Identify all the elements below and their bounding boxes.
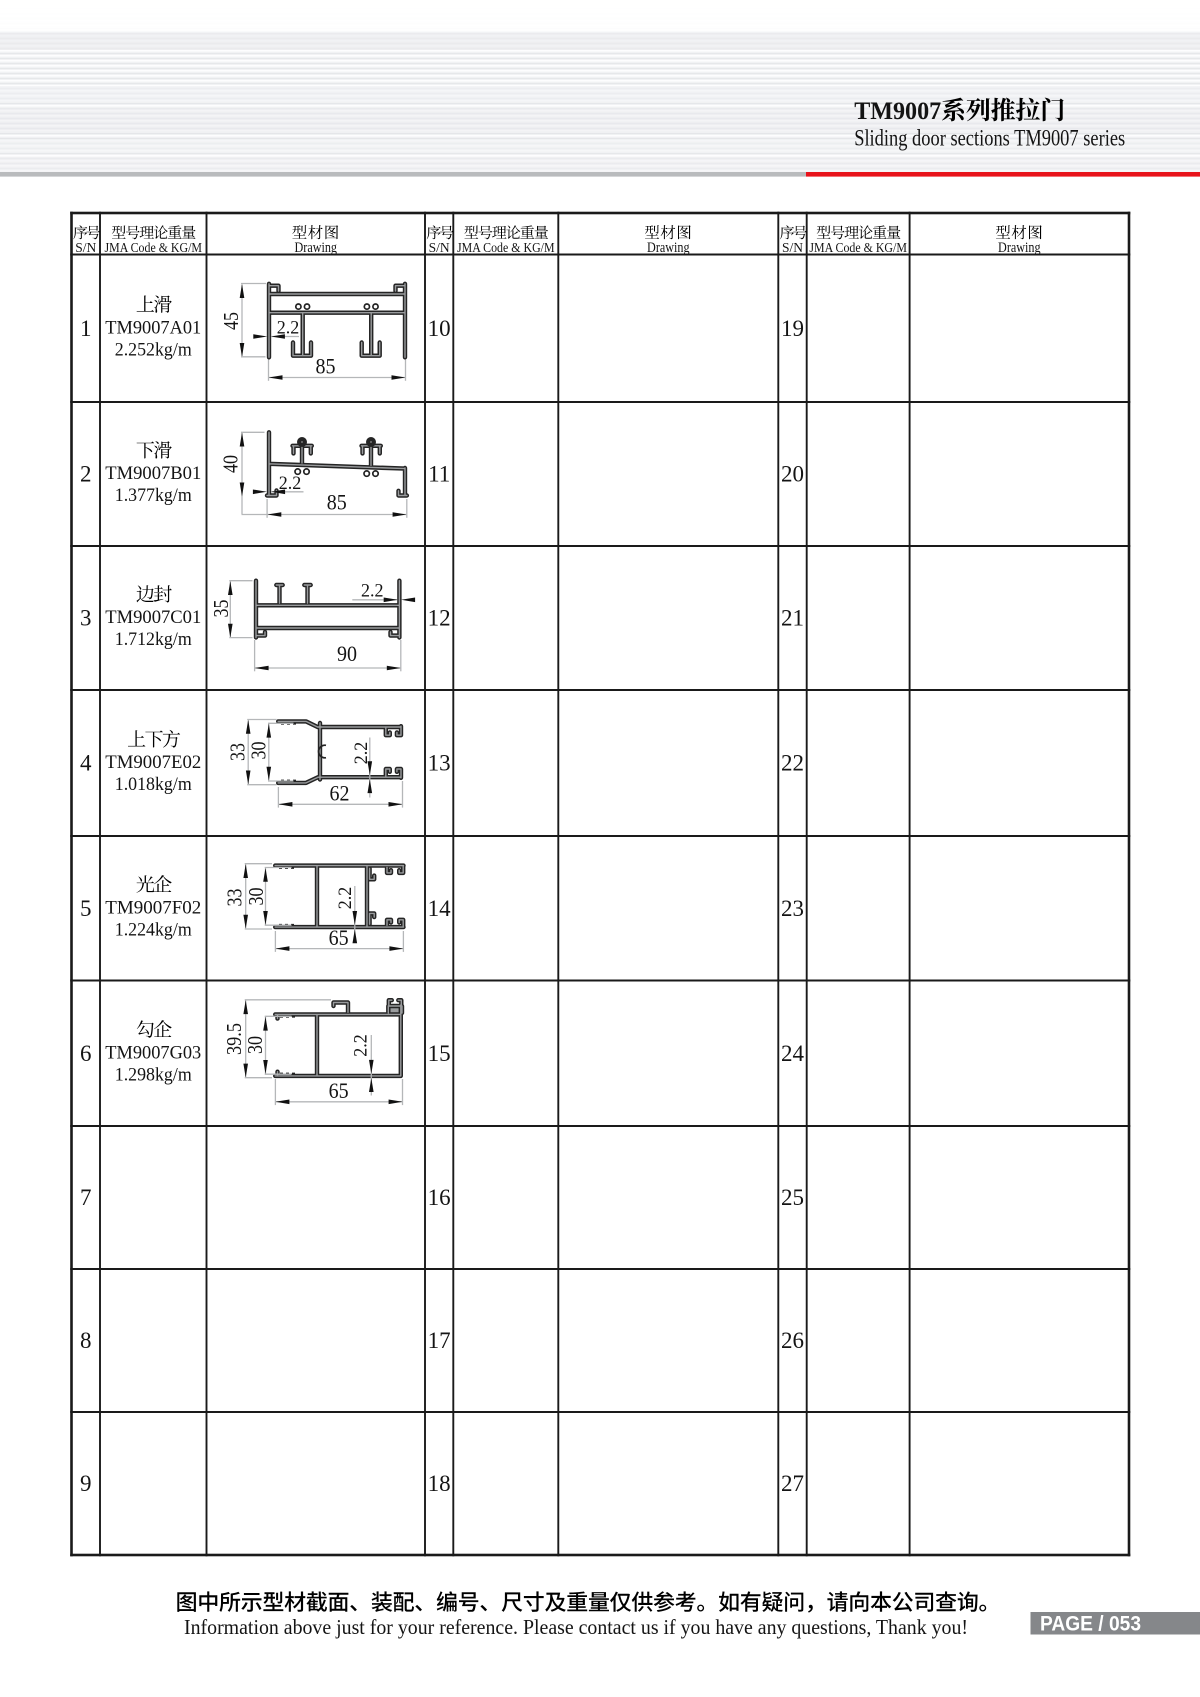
svg-text:16: 16	[428, 1185, 451, 1210]
svg-text:9: 9	[80, 1471, 92, 1496]
svg-text:33: 33	[223, 889, 247, 907]
svg-text:22: 22	[781, 751, 804, 776]
svg-text:S/N: S/N	[75, 241, 96, 256]
svg-text:1.224kg/m: 1.224kg/m	[115, 920, 193, 940]
svg-text:20: 20	[781, 462, 804, 487]
svg-text:5: 5	[80, 896, 92, 921]
svg-text:JMA Code & KG/M: JMA Code & KG/M	[457, 241, 555, 256]
svg-text:21: 21	[781, 606, 804, 631]
svg-text:13: 13	[428, 751, 451, 776]
svg-text:18: 18	[428, 1471, 451, 1496]
svg-text:12: 12	[428, 606, 451, 631]
svg-text:TM9007C01: TM9007C01	[105, 608, 201, 628]
svg-text:TM9007A01: TM9007A01	[105, 318, 201, 338]
svg-text:Drawing: Drawing	[998, 240, 1041, 256]
svg-text:30: 30	[246, 742, 270, 760]
svg-text:JMA Code & KG/M: JMA Code & KG/M	[809, 241, 907, 256]
svg-text:2.2: 2.2	[351, 742, 372, 765]
svg-text:25: 25	[781, 1185, 804, 1210]
svg-text:10: 10	[428, 316, 451, 341]
svg-text:2: 2	[80, 462, 92, 487]
svg-text:39.5: 39.5	[222, 1023, 246, 1055]
svg-text:90: 90	[337, 641, 357, 666]
svg-text:65: 65	[329, 1078, 349, 1103]
svg-text:S/N: S/N	[782, 241, 803, 256]
svg-text:62: 62	[330, 780, 350, 805]
svg-text:1: 1	[80, 316, 92, 341]
svg-text:15: 15	[428, 1041, 451, 1066]
svg-text:TM9007E02: TM9007E02	[105, 753, 201, 773]
svg-text:JMA Code & KG/M: JMA Code & KG/M	[105, 241, 203, 256]
svg-text:Sliding door sections TM9007 s: Sliding door sections TM9007 series	[854, 126, 1125, 151]
svg-text:1.712kg/m: 1.712kg/m	[115, 630, 193, 650]
svg-text:2.2: 2.2	[279, 473, 302, 494]
svg-text:40: 40	[219, 455, 243, 473]
svg-text:27: 27	[781, 1471, 804, 1496]
svg-text:2.2: 2.2	[351, 1034, 372, 1057]
svg-text:30: 30	[243, 1036, 267, 1054]
svg-text:30: 30	[244, 888, 268, 906]
svg-text:8: 8	[80, 1328, 92, 1353]
svg-text:1.377kg/m: 1.377kg/m	[115, 486, 193, 506]
svg-text:TM9007G03: TM9007G03	[105, 1043, 201, 1063]
svg-text:Drawing: Drawing	[647, 240, 690, 256]
svg-text:1.018kg/m: 1.018kg/m	[115, 775, 193, 795]
svg-text:7: 7	[80, 1185, 92, 1210]
svg-text:14: 14	[428, 896, 452, 921]
svg-text:24: 24	[781, 1041, 805, 1066]
svg-text:TM9007F02: TM9007F02	[105, 898, 201, 918]
svg-text:6: 6	[80, 1041, 92, 1066]
svg-text:2.2: 2.2	[277, 318, 300, 339]
svg-text:1.298kg/m: 1.298kg/m	[115, 1065, 193, 1085]
svg-text:Information above just for you: Information above just for your referenc…	[184, 1615, 968, 1639]
svg-text:85: 85	[316, 354, 336, 379]
svg-text:TM9007B01: TM9007B01	[105, 464, 201, 484]
svg-text:11: 11	[428, 462, 450, 487]
svg-text:23: 23	[781, 896, 804, 921]
svg-text:19: 19	[781, 316, 804, 341]
svg-text:3: 3	[80, 606, 92, 631]
svg-text:2.252kg/m: 2.252kg/m	[115, 340, 193, 360]
svg-text:45: 45	[219, 312, 243, 330]
svg-text:4: 4	[80, 751, 92, 776]
svg-text:TM9007: TM9007	[854, 98, 941, 125]
svg-text:S/N: S/N	[429, 241, 450, 256]
svg-text:35: 35	[209, 600, 233, 618]
svg-text:85: 85	[327, 489, 347, 514]
svg-text:26: 26	[781, 1328, 804, 1353]
svg-text:65: 65	[329, 925, 349, 950]
svg-text:PAGE / 053: PAGE / 053	[1040, 1613, 1141, 1636]
svg-text:17: 17	[428, 1328, 451, 1353]
svg-text:Drawing: Drawing	[295, 240, 338, 256]
svg-text:2.2: 2.2	[361, 581, 384, 602]
svg-text:2.2: 2.2	[335, 887, 356, 910]
